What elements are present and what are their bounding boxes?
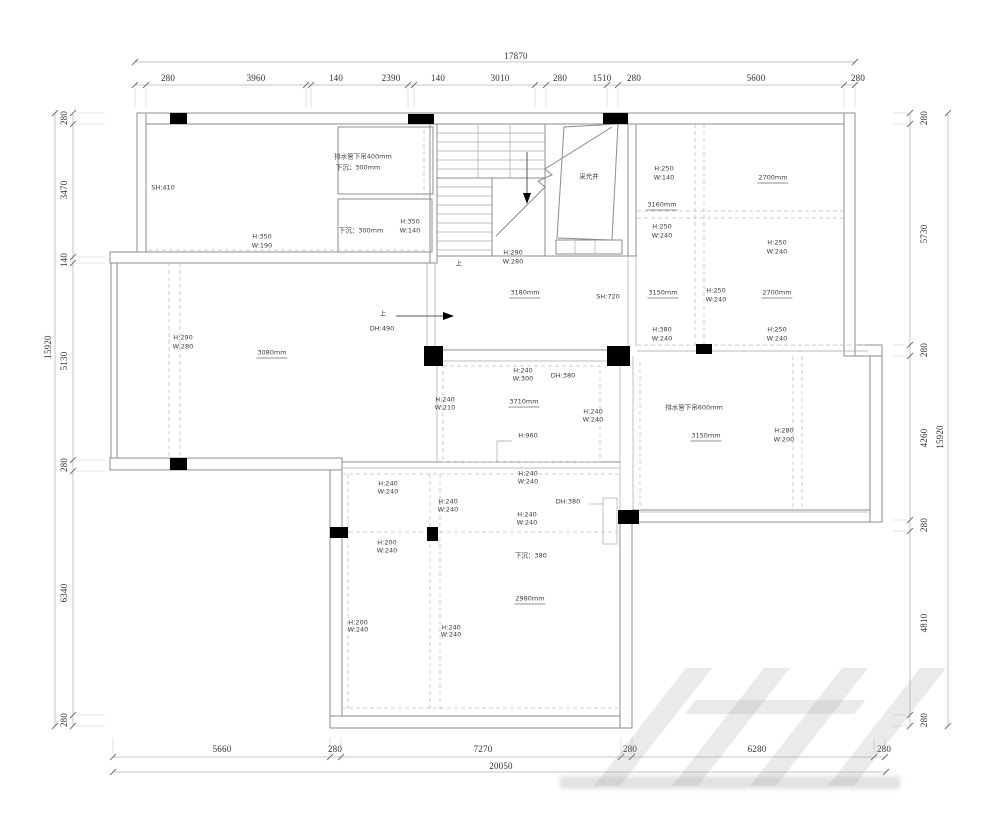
dimension-label: 1510: [593, 73, 612, 83]
annotation: 下沉：300mm: [339, 228, 384, 235]
annotation: W:300: [513, 376, 534, 383]
annotation: H:350: [252, 234, 271, 241]
annotation: W:190: [252, 243, 273, 250]
annotation: W:140: [400, 228, 421, 235]
dimension-label: 5660: [213, 744, 232, 754]
dimension-label: 4810: [919, 614, 929, 633]
dimension-label: 3960: [247, 73, 266, 83]
dimension-label: 280: [877, 744, 891, 754]
annotation: SH:720: [596, 294, 620, 301]
annotation: H:350: [400, 219, 419, 226]
annotation: W:240: [441, 632, 462, 639]
dimension-label: 280: [553, 73, 567, 83]
annotation: H:240: [518, 471, 537, 478]
annotation: 2700mm: [757, 175, 788, 184]
dimension-label: 140: [431, 73, 445, 83]
annotation: 采光井: [579, 174, 599, 181]
annotation: DH:380: [556, 499, 581, 506]
interior-partitions: [338, 124, 868, 544]
annotation: 3180mm: [509, 290, 540, 299]
annotation: W:200: [774, 437, 795, 444]
dimension-label: 4260: [919, 429, 929, 448]
annotation: 排水管下吊400mm: [334, 154, 392, 161]
annotation: 2980mm: [514, 596, 545, 605]
annotation: H:240: [438, 499, 457, 506]
dimension-label: 280: [919, 713, 929, 727]
dimension-label: 280: [59, 111, 69, 125]
dimension-total: 20050: [489, 761, 513, 771]
annotation: H:240: [378, 481, 397, 488]
annotation: 上: [380, 311, 387, 318]
annotation: 3080mm: [256, 350, 287, 359]
dimension-total: 15920: [935, 425, 945, 449]
annotation: W:240: [583, 417, 604, 424]
dimension-label: 5600: [747, 73, 766, 83]
annotation: H:250: [706, 288, 725, 295]
plan-linework: [0, 0, 1000, 833]
dimension-label: 280: [919, 111, 929, 125]
dimension-label: 280: [851, 73, 865, 83]
annotation: 2700mm: [761, 290, 792, 299]
annotation: 3150mm: [647, 290, 678, 299]
staircase: [437, 124, 612, 256]
dimension-label: 5730: [919, 225, 929, 244]
annotation: 上: [456, 261, 463, 268]
annotation: W:240: [378, 489, 399, 496]
annotation: 3710mm: [508, 399, 539, 408]
dimension-label: 3010: [491, 73, 510, 83]
annotation: H:240: [583, 409, 602, 416]
annotation: H:240: [517, 512, 536, 519]
annotation: W:240: [652, 336, 673, 343]
annotation: H:380: [652, 327, 671, 334]
annotation: W:140: [654, 175, 675, 182]
dimension-lines: [52, 59, 951, 775]
annotation: W:240: [348, 627, 369, 634]
annotation: H:200: [377, 540, 396, 547]
ceiling-dashed-lines: [148, 124, 868, 712]
annotation: W:240: [767, 249, 788, 256]
dimension-label: 280: [59, 458, 69, 472]
annotation: H:240: [513, 368, 532, 375]
annotation: W:240: [377, 548, 398, 555]
annotation: H:960: [518, 433, 537, 440]
annotation: W:210: [435, 405, 456, 412]
floorplan-canvas: SH:410H:350W:190排水管下吊400mm下沉：300mm下沉：300…: [0, 0, 1000, 833]
annotation: W:240: [767, 336, 788, 343]
annotation: H:240: [435, 397, 454, 404]
dimension-label: 3470: [59, 181, 69, 200]
annotation: DH:380: [551, 373, 576, 380]
annotation: W:280: [503, 259, 524, 266]
annotation: W:240: [518, 479, 539, 486]
annotation: 下沉：380: [515, 553, 547, 560]
dimension-label: 7270: [474, 744, 493, 754]
annotation: DH:490: [370, 326, 395, 333]
dimension-label: 2390: [382, 73, 401, 83]
annotation: H:250: [652, 224, 671, 231]
dimension-total: 17870: [504, 51, 528, 61]
annotation: H:250: [767, 327, 786, 334]
dimension-label: 280: [627, 73, 641, 83]
annotation: 3160mm: [646, 202, 677, 211]
dimension-label: 280: [59, 713, 69, 727]
annotation: H:250: [767, 240, 786, 247]
dimension-label: 280: [328, 744, 342, 754]
dimension-label: 280: [919, 518, 929, 532]
annotation: W:280: [173, 344, 194, 351]
dimension-total: 15920: [43, 335, 53, 359]
dimension-label: 6340: [59, 584, 69, 603]
dimension-label: 280: [919, 343, 929, 357]
dimension-label: 140: [329, 73, 343, 83]
annotation: H:250: [654, 166, 673, 173]
annotation: W:240: [652, 233, 673, 240]
annotation: W:240: [517, 520, 538, 527]
annotation: 下沉：300mm: [336, 165, 381, 172]
walls: [110, 113, 882, 728]
dimension-label: 5130: [59, 352, 69, 371]
annotation: 3150mm: [690, 433, 721, 442]
up-direction-arrow: [443, 312, 454, 320]
annotation: H:280: [774, 428, 793, 435]
dimension-label: 280: [161, 73, 175, 83]
annotation: H:290: [503, 250, 522, 257]
dimension-label: 6280: [748, 744, 767, 754]
annotation: W:240: [438, 507, 459, 514]
annotation: 排水管下吊600mm: [665, 405, 723, 412]
dimension-label: 140: [59, 253, 69, 267]
annotation: W:240: [706, 297, 727, 304]
dimension-label: 280: [623, 744, 637, 754]
annotation: SH:410: [151, 185, 175, 192]
annotation: H:290: [173, 335, 192, 342]
